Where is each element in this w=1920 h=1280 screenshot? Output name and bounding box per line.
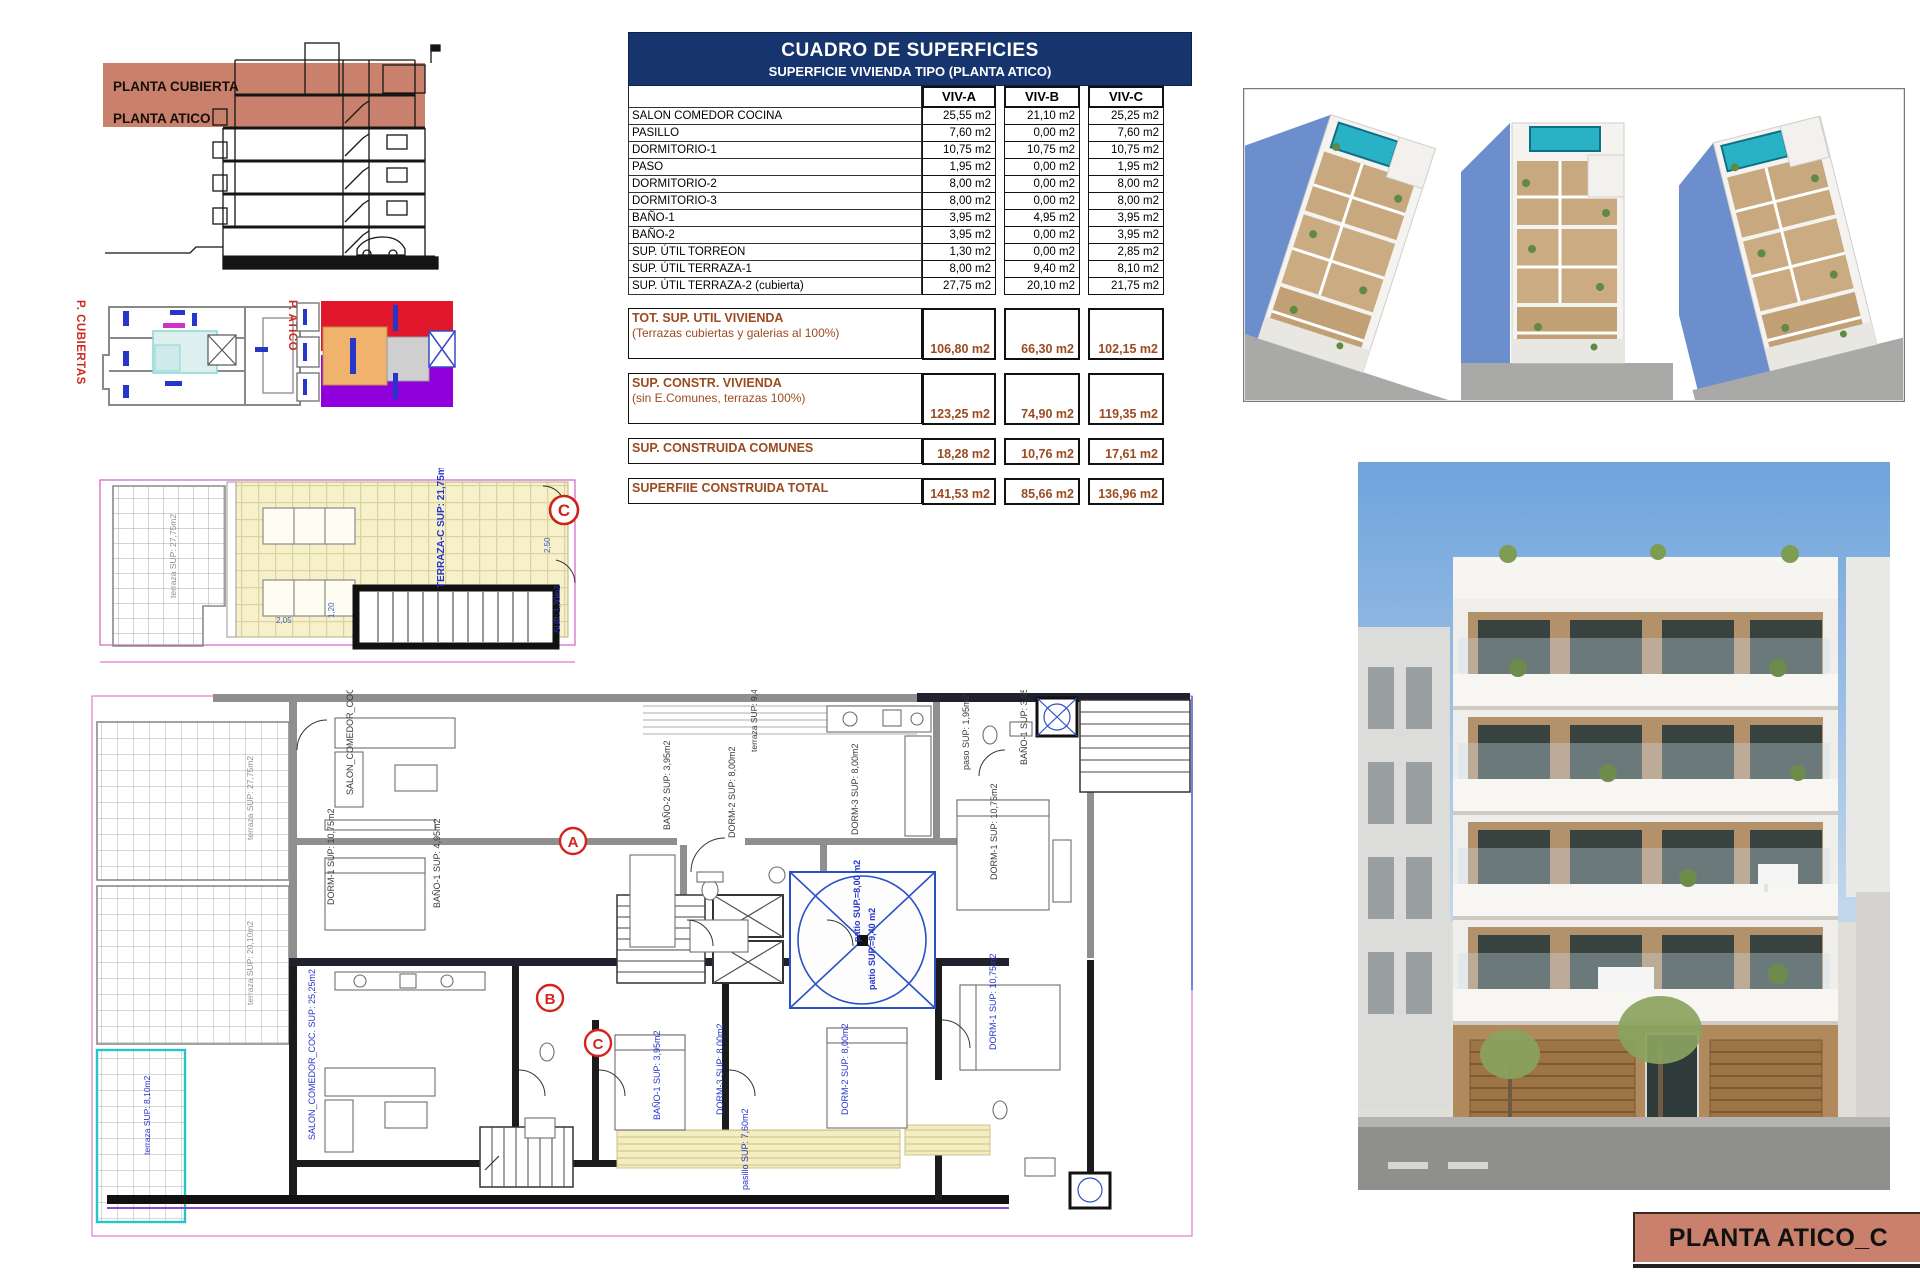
dim-text: 2,05: [276, 616, 292, 625]
table-row: DORMITORIO-3 8,00 m2 0,00 m2 8,00 m2: [628, 193, 1192, 210]
room-label: terraza SUP: 9,40m2: [749, 690, 759, 752]
row-value-a: 3,95 m2: [922, 226, 996, 244]
facade-render: [1358, 462, 1890, 1190]
elevator-symbol: [429, 331, 455, 367]
row-value-a: 27,75 m2: [922, 277, 996, 295]
key-plan-atico: [295, 293, 473, 418]
row-value-c: 1,95 m2: [1088, 158, 1164, 176]
room-label: SALON_COMEDOR_COC. SUP: 25,25m2: [307, 969, 317, 1140]
row-label: BAÑO-2: [628, 226, 922, 244]
row-value-b: 0,00 m2: [1004, 175, 1080, 193]
room-label: BAÑO-2 SUP: 3,95m2: [662, 740, 672, 830]
surface-table-title: CUADRO DE SUPERFICIES: [629, 39, 1191, 63]
marker-letter: B: [545, 991, 556, 1008]
row-value-c: 8,00 m2: [1088, 175, 1164, 193]
row-label: DORMITORIO-1: [628, 141, 922, 159]
summary-value-b: 66,30 m2: [1004, 308, 1080, 360]
dim-text: 2,50: [543, 537, 552, 553]
terrace-plan: C TERRAZA-C SUP: 21,75m2 terraza SUP: 27…: [88, 468, 588, 696]
row-value-b: 20,10 m2: [1004, 277, 1080, 295]
marker-letter: A: [568, 834, 579, 851]
room-label: DORM-3 SUP: 8,00m2: [715, 1023, 725, 1115]
row-value-c: 10,75 m2: [1088, 141, 1164, 159]
summary-label: SUPERFIIE CONSTRUIDA TOTAL: [632, 481, 921, 496]
summary-value-c: 119,35 m2: [1088, 373, 1164, 425]
sheet-title: PLANTA ATICO_C: [1669, 1224, 1889, 1253]
room-label: terraza SUP: 8,10m2: [142, 1075, 152, 1155]
summary-row-total: SUPERFIIE CONSTRUIDA TOTAL 141,53 m2 85,…: [628, 478, 1192, 505]
row-value-b: 4,95 m2: [1004, 209, 1080, 227]
col-viv-c: VIV-C: [1088, 86, 1164, 108]
row-value-b: 21,10 m2: [1004, 107, 1080, 125]
marker-letter: C: [593, 1036, 604, 1053]
surface-table-subtitle: SUPERFICIE VIVIENDA TIPO (PLANTA ATICO): [629, 63, 1191, 80]
row-label: SUP. ÚTIL TERRAZA-2 (cubierta): [628, 277, 922, 295]
row-value-a: 7,60 m2: [922, 124, 996, 142]
row-label: SUP. ÚTIL TORREON: [628, 243, 922, 261]
summary-value-c: 136,96 m2: [1088, 478, 1164, 505]
row-label: PASILLO: [628, 124, 922, 142]
marker-letter: C: [558, 501, 570, 520]
dim-text: 1,20: [327, 602, 336, 618]
row-value-a: 3,95 m2: [922, 209, 996, 227]
row-value-b: 0,00 m2: [1004, 158, 1080, 176]
summary-value-b: 85,66 m2: [1004, 478, 1080, 505]
room-label: BAÑO-1 SUP: 3,95m2: [1019, 690, 1029, 765]
row-value-c: 25,25 m2: [1088, 107, 1164, 125]
room-label: BAÑO-1 SUP: 3,95m2: [652, 1030, 662, 1120]
summary-value-b: 10,76 m2: [1004, 438, 1080, 465]
title-bar-underline: [1633, 1264, 1920, 1268]
room-label: patio SUP.=8,00 m2: [852, 860, 862, 942]
elevator-symbol: [208, 335, 236, 365]
marker-c: C: [585, 1030, 611, 1056]
row-label: DORMITORIO-2: [628, 175, 922, 193]
section-label-planta-cubierta: PLANTA CUBIERTA: [113, 79, 239, 94]
aerial-renders: [1243, 88, 1905, 402]
surface-table-header: CUADRO DE SUPERFICIES SUPERFICIE VIVIEND…: [628, 32, 1192, 86]
room-label: SALON_COMEDOR_COC. SUP: 25,55m2: [345, 690, 355, 795]
room-label: DORM-1 SUP: 10,75m2: [326, 808, 336, 905]
row-value-c: 8,10 m2: [1088, 260, 1164, 278]
room-label: DORM-1 SUP: 10,75m2: [989, 783, 999, 880]
row-value-b: 0,00 m2: [1004, 192, 1080, 210]
plan-sheet: PLANTA CUBIERTA PLANTA ATICO P. CUBIERTA…: [0, 0, 1920, 1280]
table-row: SUP. ÚTIL TERRAZA-1 8,00 m2 9,40 m2 8,10…: [628, 261, 1192, 278]
row-value-a: 25,55 m2: [922, 107, 996, 125]
summary-note: (Terrazas cubiertas y galerias al 100%): [632, 326, 921, 340]
summary-value-a: 18,28 m2: [922, 438, 996, 465]
table-row: SALON COMEDOR COCINA 25,55 m2 21,10 m2 2…: [628, 108, 1192, 125]
table-row: SUP. ÚTIL TERRAZA-2 (cubierta) 27,75 m2 …: [628, 278, 1192, 295]
row-value-a: 8,00 m2: [922, 175, 996, 193]
table-row: PASO 1,95 m2 0,00 m2 1,95 m2: [628, 159, 1192, 176]
row-label: SUP. ÚTIL TERRAZA-1: [628, 260, 922, 278]
summary-value-b: 74,90 m2: [1004, 373, 1080, 425]
row-label: PASO: [628, 158, 922, 176]
row-value-b: 0,00 m2: [1004, 226, 1080, 244]
key-plan-cubiertas-label: P. CUBIERTAS: [74, 300, 86, 385]
row-value-a: 1,95 m2: [922, 158, 996, 176]
row-value-c: 7,60 m2: [1088, 124, 1164, 142]
building-section-drawing: PLANTA CUBIERTA PLANTA ATICO: [95, 35, 465, 325]
summary-value-a: 123,25 m2: [922, 373, 996, 425]
terrace-label: SUP: 1,30m2: [553, 585, 562, 633]
row-value-c: 21,75 m2: [1088, 277, 1164, 295]
table-row: PASILLO 7,60 m2 0,00 m2 7,60 m2: [628, 125, 1192, 142]
room-label: paso SUP: 1,95m2: [961, 694, 971, 770]
row-value-c: 3,95 m2: [1088, 209, 1164, 227]
summary-label: SUP. CONSTR. VIVIENDA: [632, 376, 921, 391]
row-value-c: 2,85 m2: [1088, 243, 1164, 261]
patio-lightwell: [790, 872, 935, 1008]
terrace-label: TERRAZA-C SUP: 21,75m2: [436, 468, 447, 588]
table-row: DORMITORIO-2 8,00 m2 0,00 m2 8,00 m2: [628, 176, 1192, 193]
row-value-a: 8,00 m2: [922, 260, 996, 278]
row-value-b: 0,00 m2: [1004, 243, 1080, 261]
room-label: pasillo SUP: 7,60m2: [740, 1108, 750, 1190]
summary-row-util: TOT. SUP. UTIL VIVIENDA (Terrazas cubier…: [628, 308, 1192, 360]
summary-row-constr: SUP. CONSTR. VIVIENDA (sin E.Comunes, te…: [628, 373, 1192, 425]
main-floor-plan: A B C SALON_COMEDOR_COC. SUP: 25,55m2 DO…: [85, 690, 1195, 1245]
row-label: BAÑO-1: [628, 209, 922, 227]
summary-value-c: 17,61 m2: [1088, 438, 1164, 465]
room-label: DORM-1 SUP: 10,75m2: [988, 953, 998, 1050]
section-label-planta-atico: PLANTA ATICO: [113, 111, 211, 126]
row-value-a: 10,75 m2: [922, 141, 996, 159]
row-value-b: 0,00 m2: [1004, 124, 1080, 142]
room-label: DORM-2 SUP: 8,00m2: [840, 1023, 850, 1115]
stairs-top: [1037, 698, 1190, 792]
table-row: DORMITORIO-1 10,75 m2 10,75 m2 10,75 m2: [628, 142, 1192, 159]
terrace-label: terraza SUP: 27,75m2: [168, 514, 178, 598]
row-value-a: 8,00 m2: [922, 192, 996, 210]
row-value-c: 3,95 m2: [1088, 226, 1164, 244]
col-viv-a: VIV-A: [922, 86, 996, 108]
col-viv-b: VIV-B: [1004, 86, 1080, 108]
room-label: patio SUP.=9,40 m2: [867, 908, 877, 990]
summary-note: (sin E.Comunes, terrazas 100%): [632, 391, 921, 405]
row-label: SALON COMEDOR COCINA: [628, 107, 922, 125]
marker-c-terrace: C: [550, 496, 578, 524]
row-value-b: 9,40 m2: [1004, 260, 1080, 278]
stair-block: [356, 588, 556, 646]
room-label: terraza SUP: 27,75m2: [245, 756, 255, 840]
room-label: DORM-2 SUP: 8,00m2: [727, 746, 737, 838]
row-value-a: 1,30 m2: [922, 243, 996, 261]
row-label: DORMITORIO-3: [628, 192, 922, 210]
summary-value-a: 106,80 m2: [922, 308, 996, 360]
surface-table: CUADRO DE SUPERFICIES SUPERFICIE VIVIEND…: [628, 32, 1192, 505]
surface-table-column-headers: VIV-A VIV-B VIV-C: [628, 86, 1192, 108]
sheet-title-bar: PLANTA ATICO_C: [1633, 1212, 1920, 1262]
marker-b: B: [537, 985, 563, 1011]
summary-value-c: 102,15 m2: [1088, 308, 1164, 360]
table-row: BAÑO-2 3,95 m2 0,00 m2 3,95 m2: [628, 227, 1192, 244]
table-row: SUP. ÚTIL TORREON 1,30 m2 0,00 m2 2,85 m…: [628, 244, 1192, 261]
summary-label: TOT. SUP. UTIL VIVIENDA: [632, 311, 921, 326]
row-value-b: 10,75 m2: [1004, 141, 1080, 159]
furniture: [325, 706, 1071, 1176]
room-label: BAÑO-1 SUP: 4,95m2: [432, 818, 442, 908]
marker-a: A: [560, 828, 586, 854]
room-label: DORM-3 SUP: 8,00m2: [850, 743, 860, 835]
summary-label: SUP. CONSTRUIDA COMUNES: [632, 441, 921, 456]
summary-value-a: 141,53 m2: [922, 478, 996, 505]
table-row: BAÑO-1 3,95 m2 4,95 m2 3,95 m2: [628, 210, 1192, 227]
summary-row-comunes: SUP. CONSTRUIDA COMUNES 18,28 m2 10,76 m…: [628, 438, 1192, 465]
room-label: terraza SUP: 20,10m2: [245, 921, 255, 1005]
row-value-c: 8,00 m2: [1088, 192, 1164, 210]
